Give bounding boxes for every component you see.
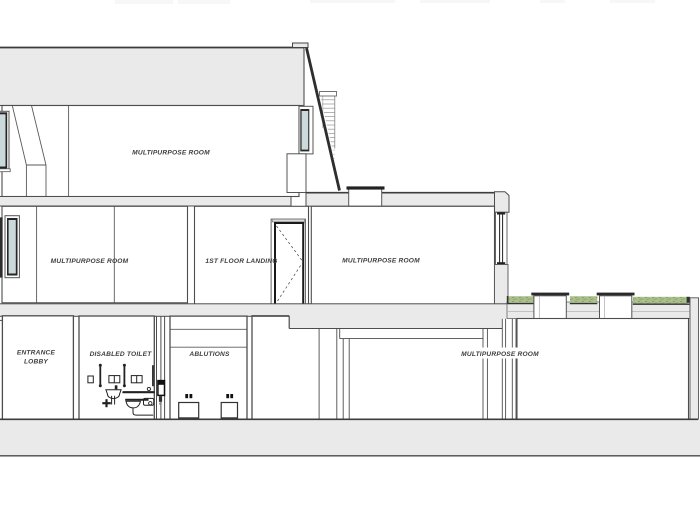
svg-text:MULTIPURPOSE ROOM: MULTIPURPOSE ROOM bbox=[51, 258, 129, 265]
svg-text:ABLUTIONS: ABLUTIONS bbox=[188, 351, 230, 358]
svg-text:LOBBY: LOBBY bbox=[24, 359, 48, 366]
svg-text:ENTRANCE: ENTRANCE bbox=[17, 350, 56, 357]
svg-text:1ST FLOOR LANDING: 1ST FLOOR LANDING bbox=[205, 258, 277, 265]
svg-text:MULTIPURPOSE ROOM: MULTIPURPOSE ROOM bbox=[342, 258, 420, 265]
svg-text:MULTIPURPOSE ROOM: MULTIPURPOSE ROOM bbox=[461, 351, 539, 358]
svg-text:DISABLED TOILET: DISABLED TOILET bbox=[90, 351, 153, 358]
svg-text:MULTIPURPOSE ROOM: MULTIPURPOSE ROOM bbox=[132, 150, 210, 157]
